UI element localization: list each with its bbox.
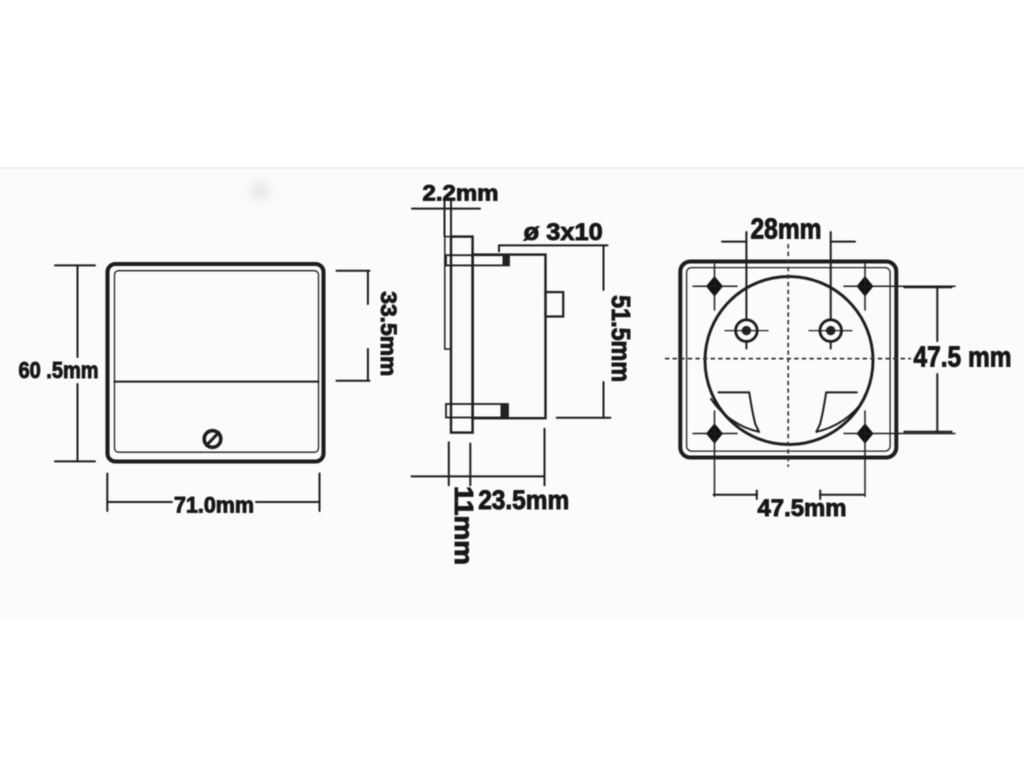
- svg-text:47.5 mm: 47.5 mm: [914, 342, 1012, 374]
- svg-text:71.0mm: 71.0mm: [174, 493, 254, 518]
- svg-text:28mm: 28mm: [751, 213, 822, 245]
- svg-text:51.5mm: 51.5mm: [606, 295, 634, 382]
- svg-text:2.2mm: 2.2mm: [423, 180, 499, 205]
- svg-text:11mm: 11mm: [449, 486, 479, 565]
- svg-text:ø 3x10: ø 3x10: [524, 219, 603, 246]
- svg-text:33.5mm: 33.5mm: [376, 291, 401, 376]
- svg-text:47.5mm: 47.5mm: [758, 495, 847, 522]
- svg-text:60 .5mm: 60 .5mm: [19, 357, 99, 383]
- svg-text:23.5mm: 23.5mm: [478, 485, 569, 515]
